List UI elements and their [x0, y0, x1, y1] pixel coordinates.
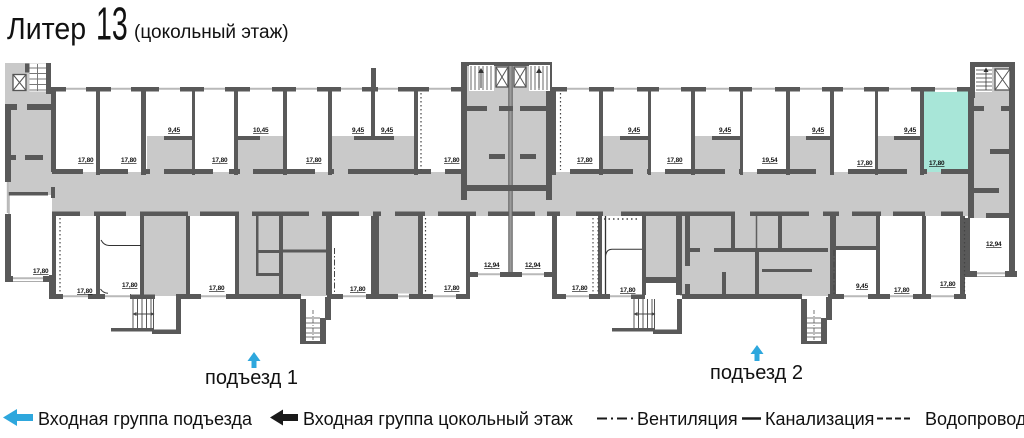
svg-text:19,54: 19,54 — [762, 157, 778, 164]
svg-text:17,80: 17,80 — [572, 285, 588, 292]
svg-text:17,80: 17,80 — [306, 157, 322, 164]
svg-text:9,45: 9,45 — [719, 127, 732, 134]
svg-text:17,80: 17,80 — [929, 160, 945, 167]
svg-text:17,80: 17,80 — [857, 160, 873, 167]
svg-text:9,45: 9,45 — [904, 127, 917, 134]
svg-text:9,45: 9,45 — [628, 127, 641, 134]
svg-text:17,80: 17,80 — [77, 288, 93, 295]
svg-text:17,80: 17,80 — [212, 157, 228, 164]
svg-text:Входная группа цокольный этаж: Входная группа цокольный этаж — [303, 409, 573, 429]
svg-text:17,80: 17,80 — [33, 268, 49, 275]
svg-text:9,45: 9,45 — [168, 127, 181, 134]
svg-text:Литер: Литер — [7, 12, 86, 46]
svg-text:9,45: 9,45 — [812, 127, 825, 134]
svg-text:17,80: 17,80 — [444, 285, 460, 292]
svg-text:Водопровод: Водопровод — [925, 409, 1024, 429]
svg-text:9,45: 9,45 — [856, 283, 869, 290]
svg-text:(цокольный этаж): (цокольный этаж) — [134, 22, 289, 43]
svg-text:подъезд 1: подъезд 1 — [205, 367, 298, 389]
svg-text:10,45: 10,45 — [253, 127, 269, 134]
svg-text:12,94: 12,94 — [484, 262, 500, 269]
svg-text:17,80: 17,80 — [940, 281, 956, 288]
svg-text:12,94: 12,94 — [525, 262, 541, 269]
svg-text:17,80: 17,80 — [894, 287, 910, 294]
svg-text:17,80: 17,80 — [122, 282, 138, 289]
svg-text:17,80: 17,80 — [121, 157, 137, 164]
svg-text:подъезд 2: подъезд 2 — [710, 362, 803, 384]
svg-text:17,80: 17,80 — [620, 287, 636, 294]
svg-text:Вентиляция: Вентиляция — [637, 409, 738, 429]
svg-text:9,45: 9,45 — [381, 127, 394, 134]
svg-text:17,80: 17,80 — [444, 157, 460, 164]
svg-text:12,94: 12,94 — [986, 241, 1002, 248]
svg-text:Входная группа подъезда: Входная группа подъезда — [38, 409, 253, 429]
svg-text:9,45: 9,45 — [352, 127, 365, 134]
svg-text:17,80: 17,80 — [350, 286, 366, 293]
svg-text:17,80: 17,80 — [577, 157, 593, 164]
svg-text:17,80: 17,80 — [78, 157, 94, 164]
svg-text:13: 13 — [96, 0, 128, 50]
svg-text:17,80: 17,80 — [667, 157, 683, 164]
svg-text:Канализация: Канализация — [765, 409, 874, 429]
svg-text:17,80: 17,80 — [209, 285, 225, 292]
